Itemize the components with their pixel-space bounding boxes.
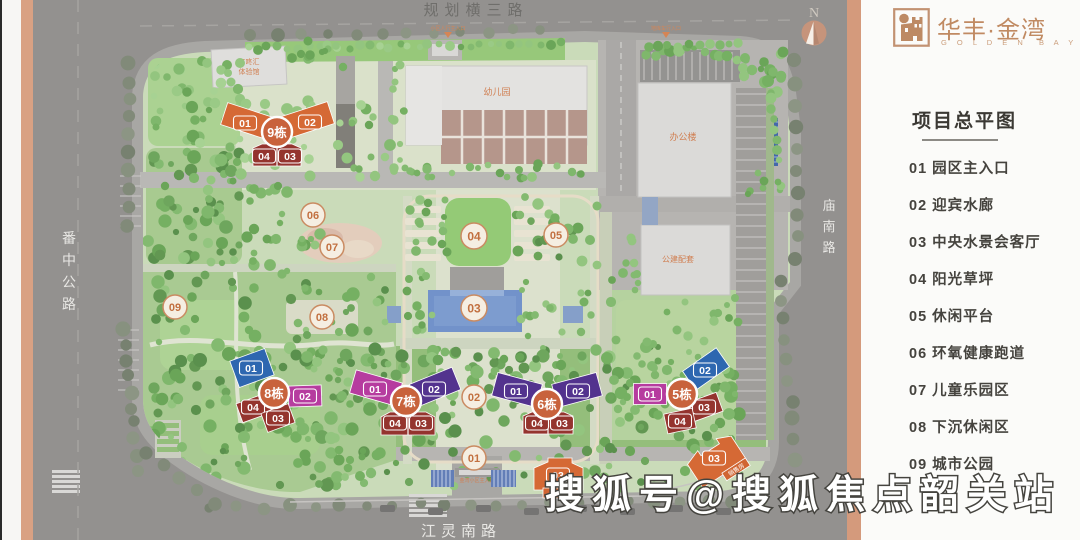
svg-text:庙南路: 庙南路 — [822, 198, 835, 255]
svg-text:规划横三路: 规划横三路 — [423, 2, 528, 19]
svg-text:搜狐号@搜狐焦点韶关站: 搜狐号@搜狐焦点韶关站 — [545, 474, 1061, 517]
svg-text:江灵南路: 江灵南路 — [421, 523, 501, 540]
